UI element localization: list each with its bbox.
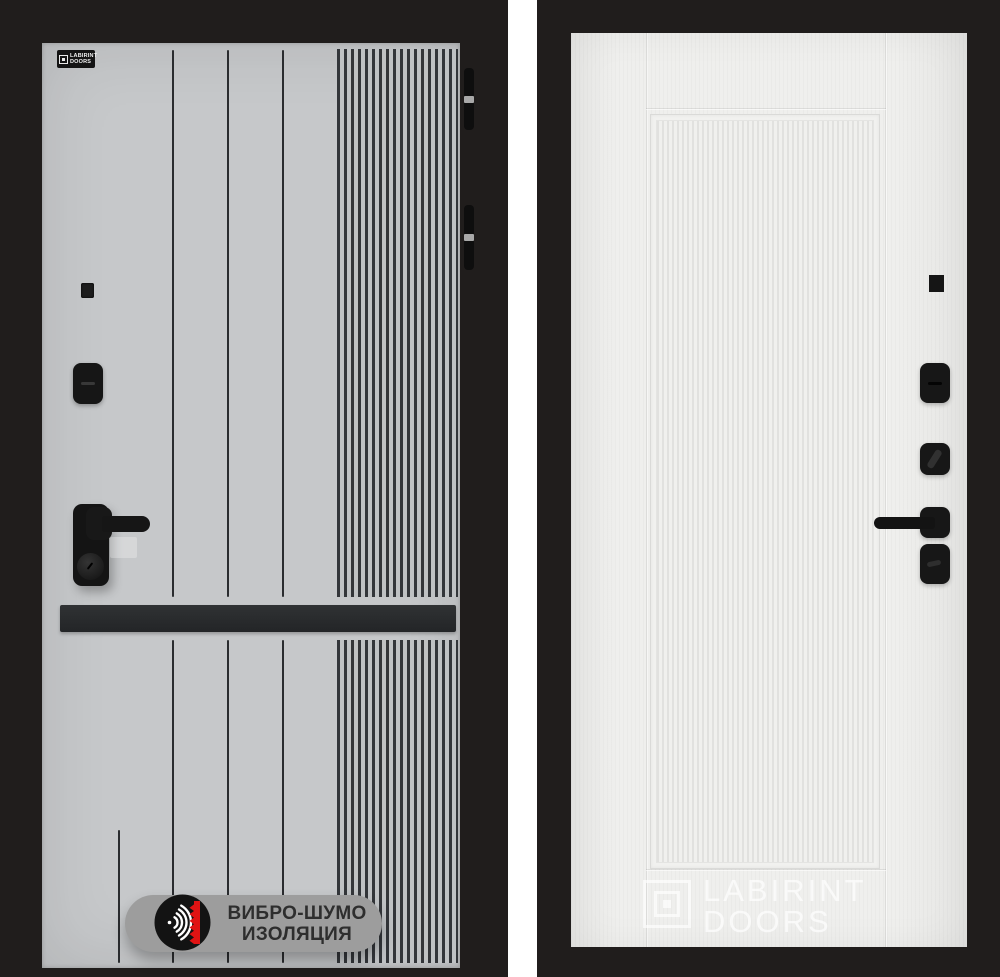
pinstripe [118, 830, 120, 963]
brand-logo-text: LABIRINT DOORS [70, 53, 97, 65]
brand-line2: DOORS [70, 59, 97, 65]
right-door-panel: LABIRINT DOORS [571, 33, 967, 947]
keyhole-slot [81, 382, 95, 385]
pinstripe [172, 50, 174, 597]
upper-lock-plate [73, 363, 103, 404]
watermark-text: LABIRINT DOORS [703, 875, 867, 937]
labyrinth-logo-icon [59, 55, 68, 64]
watermark-logo-dot [663, 900, 671, 908]
sound-isolation-badge: ВИБРО-ШУМО ИЗОЛЯЦИЯ [125, 895, 382, 952]
left-door-frame: LABIRINT DOORS [0, 0, 508, 977]
door-handle-lever [874, 517, 935, 529]
ribbed-texture [337, 49, 458, 597]
watermark-line2: DOORS [703, 906, 867, 937]
door-hinge [464, 205, 474, 270]
door-handle-lever [102, 516, 150, 532]
thumbturn-plate [920, 544, 950, 584]
panel-seam [885, 33, 886, 947]
panel-seam [646, 869, 886, 870]
pinstripe [227, 50, 229, 597]
panel-seam [646, 108, 886, 109]
watermark-line1: LABIRINT [703, 875, 867, 906]
center-panel [650, 114, 880, 869]
badge-line2: ИЗОЛЯЦИЯ [242, 924, 352, 945]
pinstripe [282, 50, 284, 597]
panel-seam [646, 33, 647, 947]
keyhole-slot [928, 382, 942, 385]
right-door-frame: LABIRINT DOORS [537, 0, 1000, 977]
accent-bar [60, 605, 456, 632]
thumbturn [927, 560, 942, 568]
upper-lock-plate [920, 363, 950, 403]
watermark-logo-icon [643, 880, 691, 928]
brand-logo-plate: LABIRINT DOORS [57, 50, 95, 68]
keyhole-mark [87, 562, 94, 570]
metal-reflection [110, 537, 137, 558]
background-gap [508, 0, 537, 977]
badge-line1: ВИБРО-ШУМО [227, 903, 366, 924]
key-cylinder-plate [920, 443, 950, 475]
key-cylinder [926, 449, 943, 470]
hinge-band [464, 96, 474, 103]
product-photo-two-doors: LABIRINT DOORS [0, 0, 1000, 977]
lock-cylinder-knob [77, 553, 104, 580]
ribbed-texture [656, 120, 874, 863]
peephole [81, 283, 94, 298]
peephole [929, 275, 944, 292]
badge-label: ВИБРО-ШУМО ИЗОЛЯЦИЯ [217, 895, 377, 952]
left-door-panel: LABIRINT DOORS [42, 43, 460, 968]
hinge-band [464, 234, 474, 241]
door-hinge [464, 68, 474, 130]
sound-isolation-icon [154, 894, 211, 951]
